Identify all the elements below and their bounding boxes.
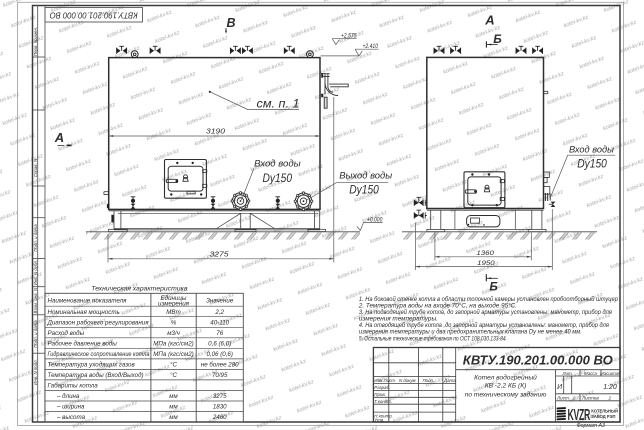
svg-text:+2.575: +2.575 — [341, 34, 357, 40]
svg-text:измерения: измерения — [158, 301, 190, 308]
svg-text:КВ -2,2 КБ (К): КВ -2,2 КБ (К) — [485, 383, 527, 390]
svg-text:– высота: – высота — [56, 414, 86, 421]
svg-text:+2.410: +2.410 — [363, 44, 379, 50]
svg-text:1950: 1950 — [477, 260, 495, 267]
svg-text:Дата: Дата — [443, 378, 456, 383]
svg-text:70/95: 70/95 — [212, 372, 228, 379]
svg-text:2: 2 — [608, 395, 612, 400]
svg-text:КВТУ.190.201.00.000 ВО: КВТУ.190.201.00.000 ВО — [463, 352, 613, 367]
svg-text:Габариты котла: Габариты котла — [48, 383, 99, 390]
svg-text:1830: 1830 — [213, 404, 227, 411]
svg-text:Значение: Значение — [206, 298, 234, 305]
svg-text:Б: Б — [489, 280, 498, 294]
svg-text:°С: °С — [170, 362, 177, 369]
svg-text:КОТЕЛЬНЫЙ: КОТЕЛЬНЫЙ — [591, 409, 618, 414]
svg-text:Диапазон рабочего регулировани: Диапазон рабочего регулирования — [47, 319, 150, 326]
svg-text:Инв. N подл.: Инв. N подл. — [33, 359, 38, 385]
svg-text:мм: мм — [169, 404, 178, 411]
svg-text:N докум.: N докум. — [399, 378, 417, 383]
svg-text:м3/ч: м3/ч — [167, 330, 180, 337]
svg-text:по техническому заданию: по техническому заданию — [465, 390, 547, 398]
svg-text:Расход воды: Расход воды — [48, 330, 85, 337]
svg-text:см. п. 1: см. п. 1 — [257, 99, 300, 111]
svg-text:KVZR: KVZR — [568, 407, 591, 424]
svg-text:не более 280: не более 280 — [201, 362, 239, 369]
svg-text:Выход воды: Выход воды — [339, 170, 392, 181]
svg-text:Температура уходящих газов: Температура уходящих газов — [48, 362, 136, 369]
svg-text:40-110: 40-110 — [210, 319, 229, 326]
svg-text:5. Остальные технические треб: 5. Остальные технические требования по О… — [359, 334, 507, 342]
svg-text:МПа (кгс/см2): МПа (кгс/см2) — [153, 351, 193, 358]
svg-text:Техническая характеристика: Техническая характеристика — [91, 286, 187, 293]
svg-text:Подп. и дата: Подп. и дата — [33, 224, 38, 252]
svg-text:ЗАВОД РЭП: ЗАВОД РЭП — [591, 414, 615, 419]
svg-text:МПа (кгс/см2): МПа (кгс/см2) — [153, 341, 193, 348]
svg-text:3275: 3275 — [213, 393, 227, 400]
svg-text:Разраб.: Разраб. — [374, 385, 390, 390]
svg-text:3275: 3275 — [210, 251, 229, 258]
svg-text:А: А — [484, 13, 494, 28]
svg-text:%: % — [171, 319, 177, 326]
svg-text:Утв.: Утв. — [374, 418, 384, 423]
svg-text:Вход воды: Вход воды — [569, 144, 614, 155]
svg-text:Рабочее давление воды: Рабочее давление воды — [48, 341, 118, 348]
svg-text:Справ. N: Справ. N — [33, 158, 38, 177]
svg-text:0,06 (0,6): 0,06 (0,6) — [206, 351, 232, 358]
svg-text:Котел водогрейный: Котел водогрейный — [474, 374, 537, 382]
svg-text:Наименование показателя: Наименование показателя — [48, 298, 128, 305]
svg-text:МВт: МВт — [166, 309, 180, 316]
svg-text:мм: мм — [169, 414, 178, 421]
svg-text:Инв. N дубл.: Инв. N дубл. — [33, 260, 38, 285]
svg-text:Температура воды (Вход/Выход): Температура воды (Вход/Выход) — [48, 372, 144, 379]
svg-text:Гидравлическое сопротивление к: Гидравлическое сопротивление котла — [48, 351, 150, 358]
svg-text:А: А — [54, 130, 64, 145]
svg-text:В: В — [227, 16, 236, 30]
svg-text:Перв. примен.: Перв. примен. — [33, 27, 38, 56]
svg-text:Номинальная мощность: Номинальная мощность — [48, 309, 120, 316]
svg-text:Dy150: Dy150 — [349, 184, 379, 196]
svg-text:76: 76 — [216, 330, 223, 337]
svg-text:0,6 (6,0): 0,6 (6,0) — [208, 341, 231, 348]
svg-text:Изм.Лист: Изм.Лист — [374, 378, 395, 383]
svg-text:Подп.: Подп. — [423, 378, 435, 383]
svg-text:КВТУ.190.201.00.000 ВО: КВТУ.190.201.00.000 ВО — [49, 11, 137, 21]
svg-text:Вход воды: Вход воды — [254, 159, 301, 170]
svg-text:Т.контр.: Т.контр. — [374, 399, 392, 404]
svg-text:Формат А3: Формат А3 — [577, 423, 605, 429]
svg-text:°С: °С — [170, 372, 177, 379]
svg-text:Масштаб: Масштаб — [600, 371, 621, 376]
svg-text:Взам. инв. N: Взам. инв. N — [33, 287, 38, 313]
svg-text:Dy150: Dy150 — [577, 158, 607, 170]
svg-text:2460: 2460 — [212, 414, 227, 421]
svg-text:– ширина: – ширина — [56, 404, 85, 411]
svg-text:+0.000: +0.000 — [367, 217, 383, 223]
svg-text:Лист: Лист — [556, 395, 569, 400]
svg-text:мм: мм — [169, 393, 178, 400]
svg-text:Пров.: Пров. — [374, 392, 386, 397]
svg-text:Б: Б — [493, 32, 502, 46]
svg-text:Dy150: Dy150 — [263, 173, 293, 185]
svg-text:2,2: 2,2 — [214, 309, 224, 316]
svg-text:3190: 3190 — [206, 128, 225, 135]
svg-text:Лит.: Лит. — [562, 371, 573, 376]
svg-text:Подп. и дата: Подп. и дата — [33, 320, 38, 348]
svg-text:Листов: Листов — [581, 395, 599, 400]
svg-text:– длина: – длина — [56, 393, 80, 400]
svg-text:1360: 1360 — [476, 250, 494, 257]
svg-text:Масса: Масса — [584, 371, 598, 376]
svg-text:1: 1 — [573, 395, 576, 400]
svg-text:1:20: 1:20 — [603, 384, 617, 391]
